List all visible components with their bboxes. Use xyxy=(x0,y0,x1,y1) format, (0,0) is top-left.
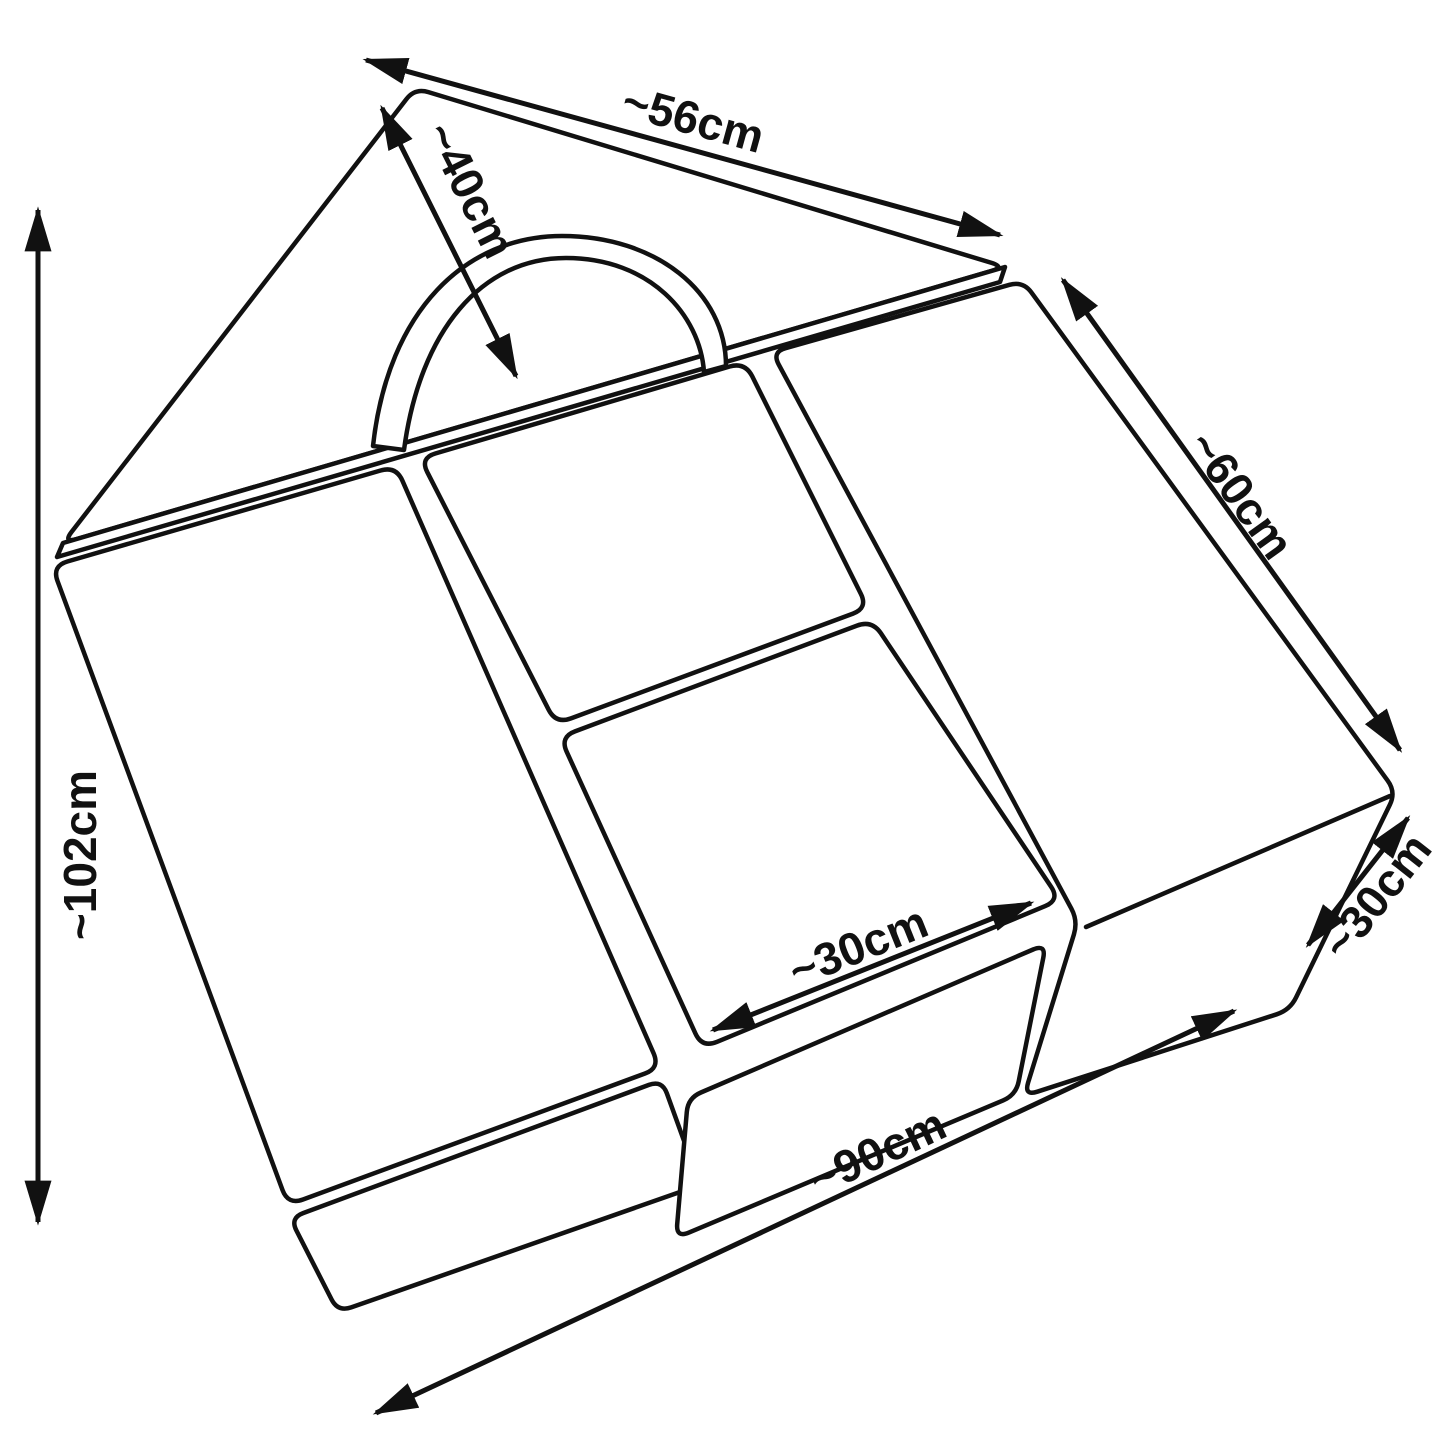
block-faces xyxy=(56,91,1392,1309)
diagram-page: ~102cm ~56cm ~40cm ~60cm ~30cm ~30cm ~90… xyxy=(0,0,1445,1445)
dimension-drawing: ~102cm ~56cm ~40cm ~60cm ~30cm ~30cm ~90… xyxy=(0,0,1445,1445)
label-overall-depth: ~102cm xyxy=(54,770,106,940)
